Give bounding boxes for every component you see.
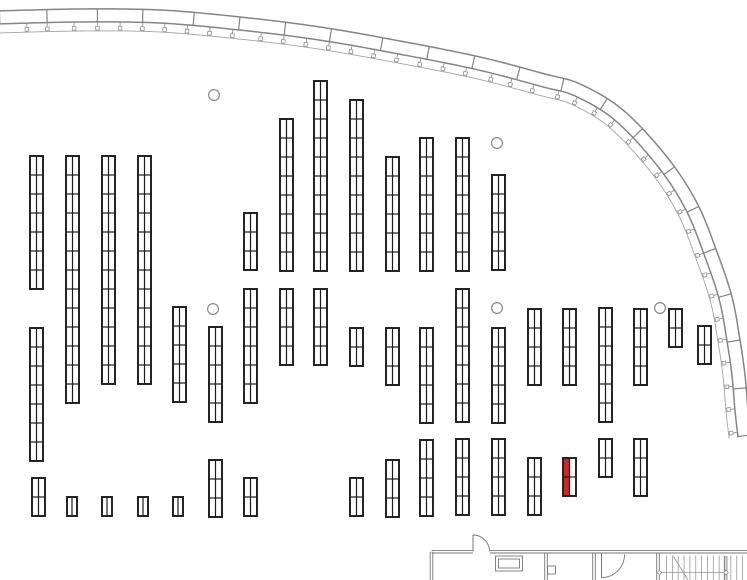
shelf-rack[interactable] xyxy=(528,458,541,515)
shelf-rack[interactable] xyxy=(420,440,433,516)
shelf-rack[interactable] xyxy=(563,309,576,385)
structural-column xyxy=(492,303,503,314)
shelf-rack[interactable] xyxy=(350,328,363,366)
wall-stub xyxy=(548,566,556,574)
counter xyxy=(499,559,520,568)
shelf-rack[interactable] xyxy=(209,460,222,517)
shelf-rack[interactable] xyxy=(528,309,541,385)
shelf-rack[interactable] xyxy=(280,119,293,271)
selected-shelf-rack[interactable] xyxy=(563,458,576,496)
shelf-rack[interactable] xyxy=(173,497,183,516)
shelf-rack[interactable] xyxy=(669,309,682,347)
shelf-rack[interactable] xyxy=(67,497,77,516)
staircase xyxy=(657,556,742,580)
shelf-rack[interactable] xyxy=(634,439,647,496)
shelf-rack[interactable] xyxy=(32,478,45,516)
shelf-rack[interactable] xyxy=(30,156,43,289)
structural-column xyxy=(208,304,219,315)
door-swing xyxy=(473,535,490,552)
structural-column xyxy=(492,138,503,149)
shelf-rack[interactable] xyxy=(456,439,469,515)
shelf-rack[interactable] xyxy=(244,213,257,270)
shelf-rack[interactable] xyxy=(350,478,363,516)
shelf-rack[interactable] xyxy=(66,156,79,403)
shelf-rack[interactable] xyxy=(456,289,469,422)
shelf-rack[interactable] xyxy=(492,439,505,515)
shelf-rack[interactable] xyxy=(420,328,433,423)
shelf-rack[interactable] xyxy=(698,326,711,364)
shelf-rack[interactable] xyxy=(599,308,612,422)
shelf-rack[interactable] xyxy=(30,328,43,461)
shelf-rack[interactable] xyxy=(138,156,151,384)
floor-plan-canvas xyxy=(0,0,747,580)
shelf-rack[interactable] xyxy=(386,328,399,385)
counter xyxy=(496,556,523,571)
shelf-rack[interactable] xyxy=(634,309,647,385)
shelf-rack[interactable] xyxy=(386,157,399,271)
direction-marker xyxy=(657,570,662,575)
shelf-racks xyxy=(30,81,711,517)
shelf-rack[interactable] xyxy=(102,497,112,516)
floor-plan-svg xyxy=(0,0,747,580)
back-rooms xyxy=(430,535,747,580)
shelf-rack[interactable] xyxy=(492,328,505,423)
structural-column xyxy=(209,90,220,101)
shelf-rack[interactable] xyxy=(280,289,293,365)
shelf-rack[interactable] xyxy=(492,175,505,270)
structural-columns xyxy=(208,90,666,315)
shelf-rack[interactable] xyxy=(244,478,257,516)
shelf-rack[interactable] xyxy=(420,138,433,271)
shelf-rack[interactable] xyxy=(314,81,327,271)
facade-mullion-ticks xyxy=(25,22,737,435)
shelf-rack[interactable] xyxy=(102,156,115,384)
shelf-rack[interactable] xyxy=(386,460,399,517)
shelf-rack[interactable] xyxy=(350,100,363,271)
shelf-rack[interactable] xyxy=(314,289,327,365)
shelf-rack[interactable] xyxy=(138,497,148,516)
door-swing xyxy=(602,553,625,578)
shelf-rack[interactable] xyxy=(599,439,612,477)
shelf-rack[interactable] xyxy=(244,289,257,403)
structural-column xyxy=(655,303,666,314)
shelf-rack[interactable] xyxy=(173,307,186,402)
shelf-rack[interactable] xyxy=(209,327,222,422)
shelf-rack[interactable] xyxy=(456,138,469,271)
